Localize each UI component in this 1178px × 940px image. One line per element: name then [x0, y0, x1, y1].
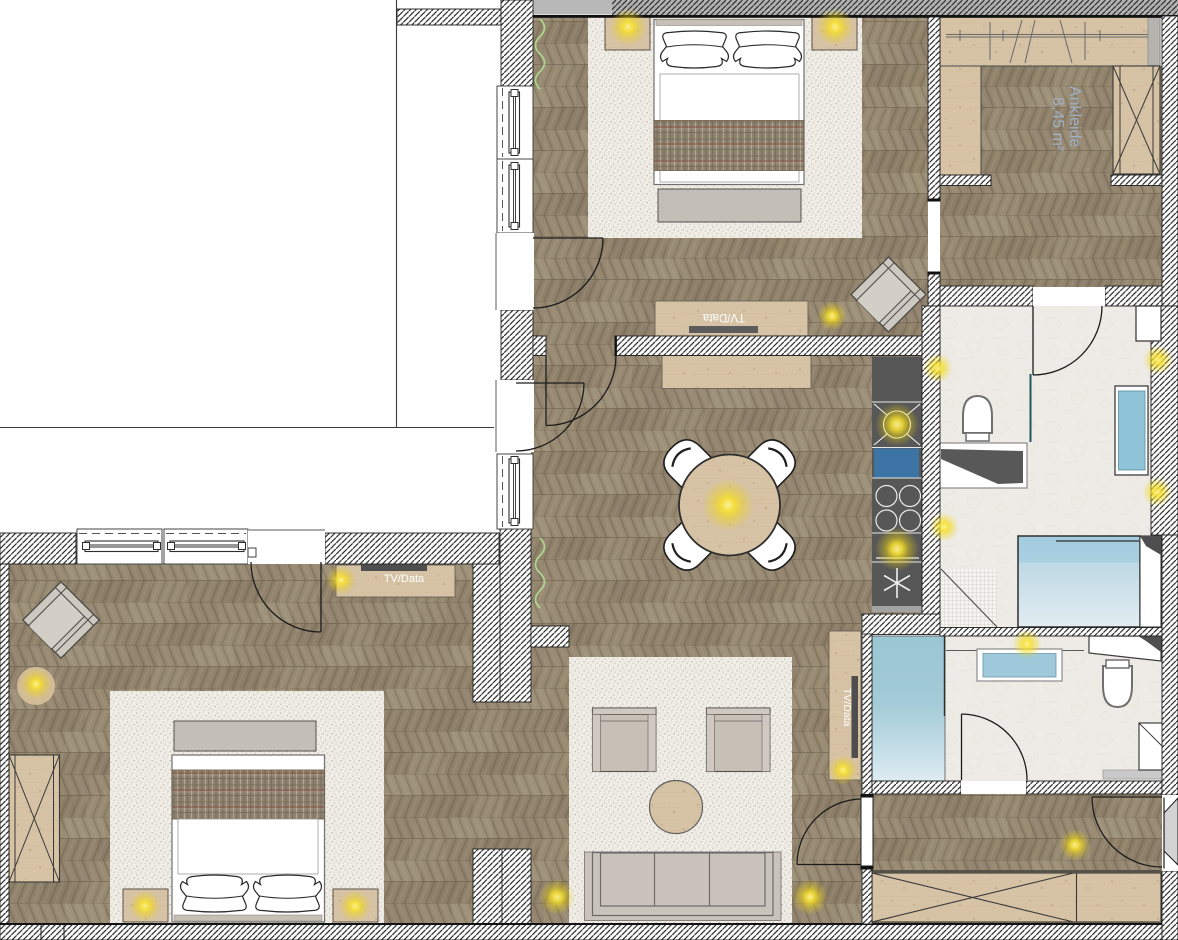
svg-text:8,45 m²: 8,45 m² — [1049, 97, 1066, 152]
svg-text:TV/Data: TV/Data — [384, 573, 425, 585]
svg-text:TV/Data: TV/Data — [702, 311, 745, 323]
svg-text:Ankleide: Ankleide — [1066, 86, 1083, 147]
svg-text:TV/Data: TV/Data — [841, 688, 853, 727]
